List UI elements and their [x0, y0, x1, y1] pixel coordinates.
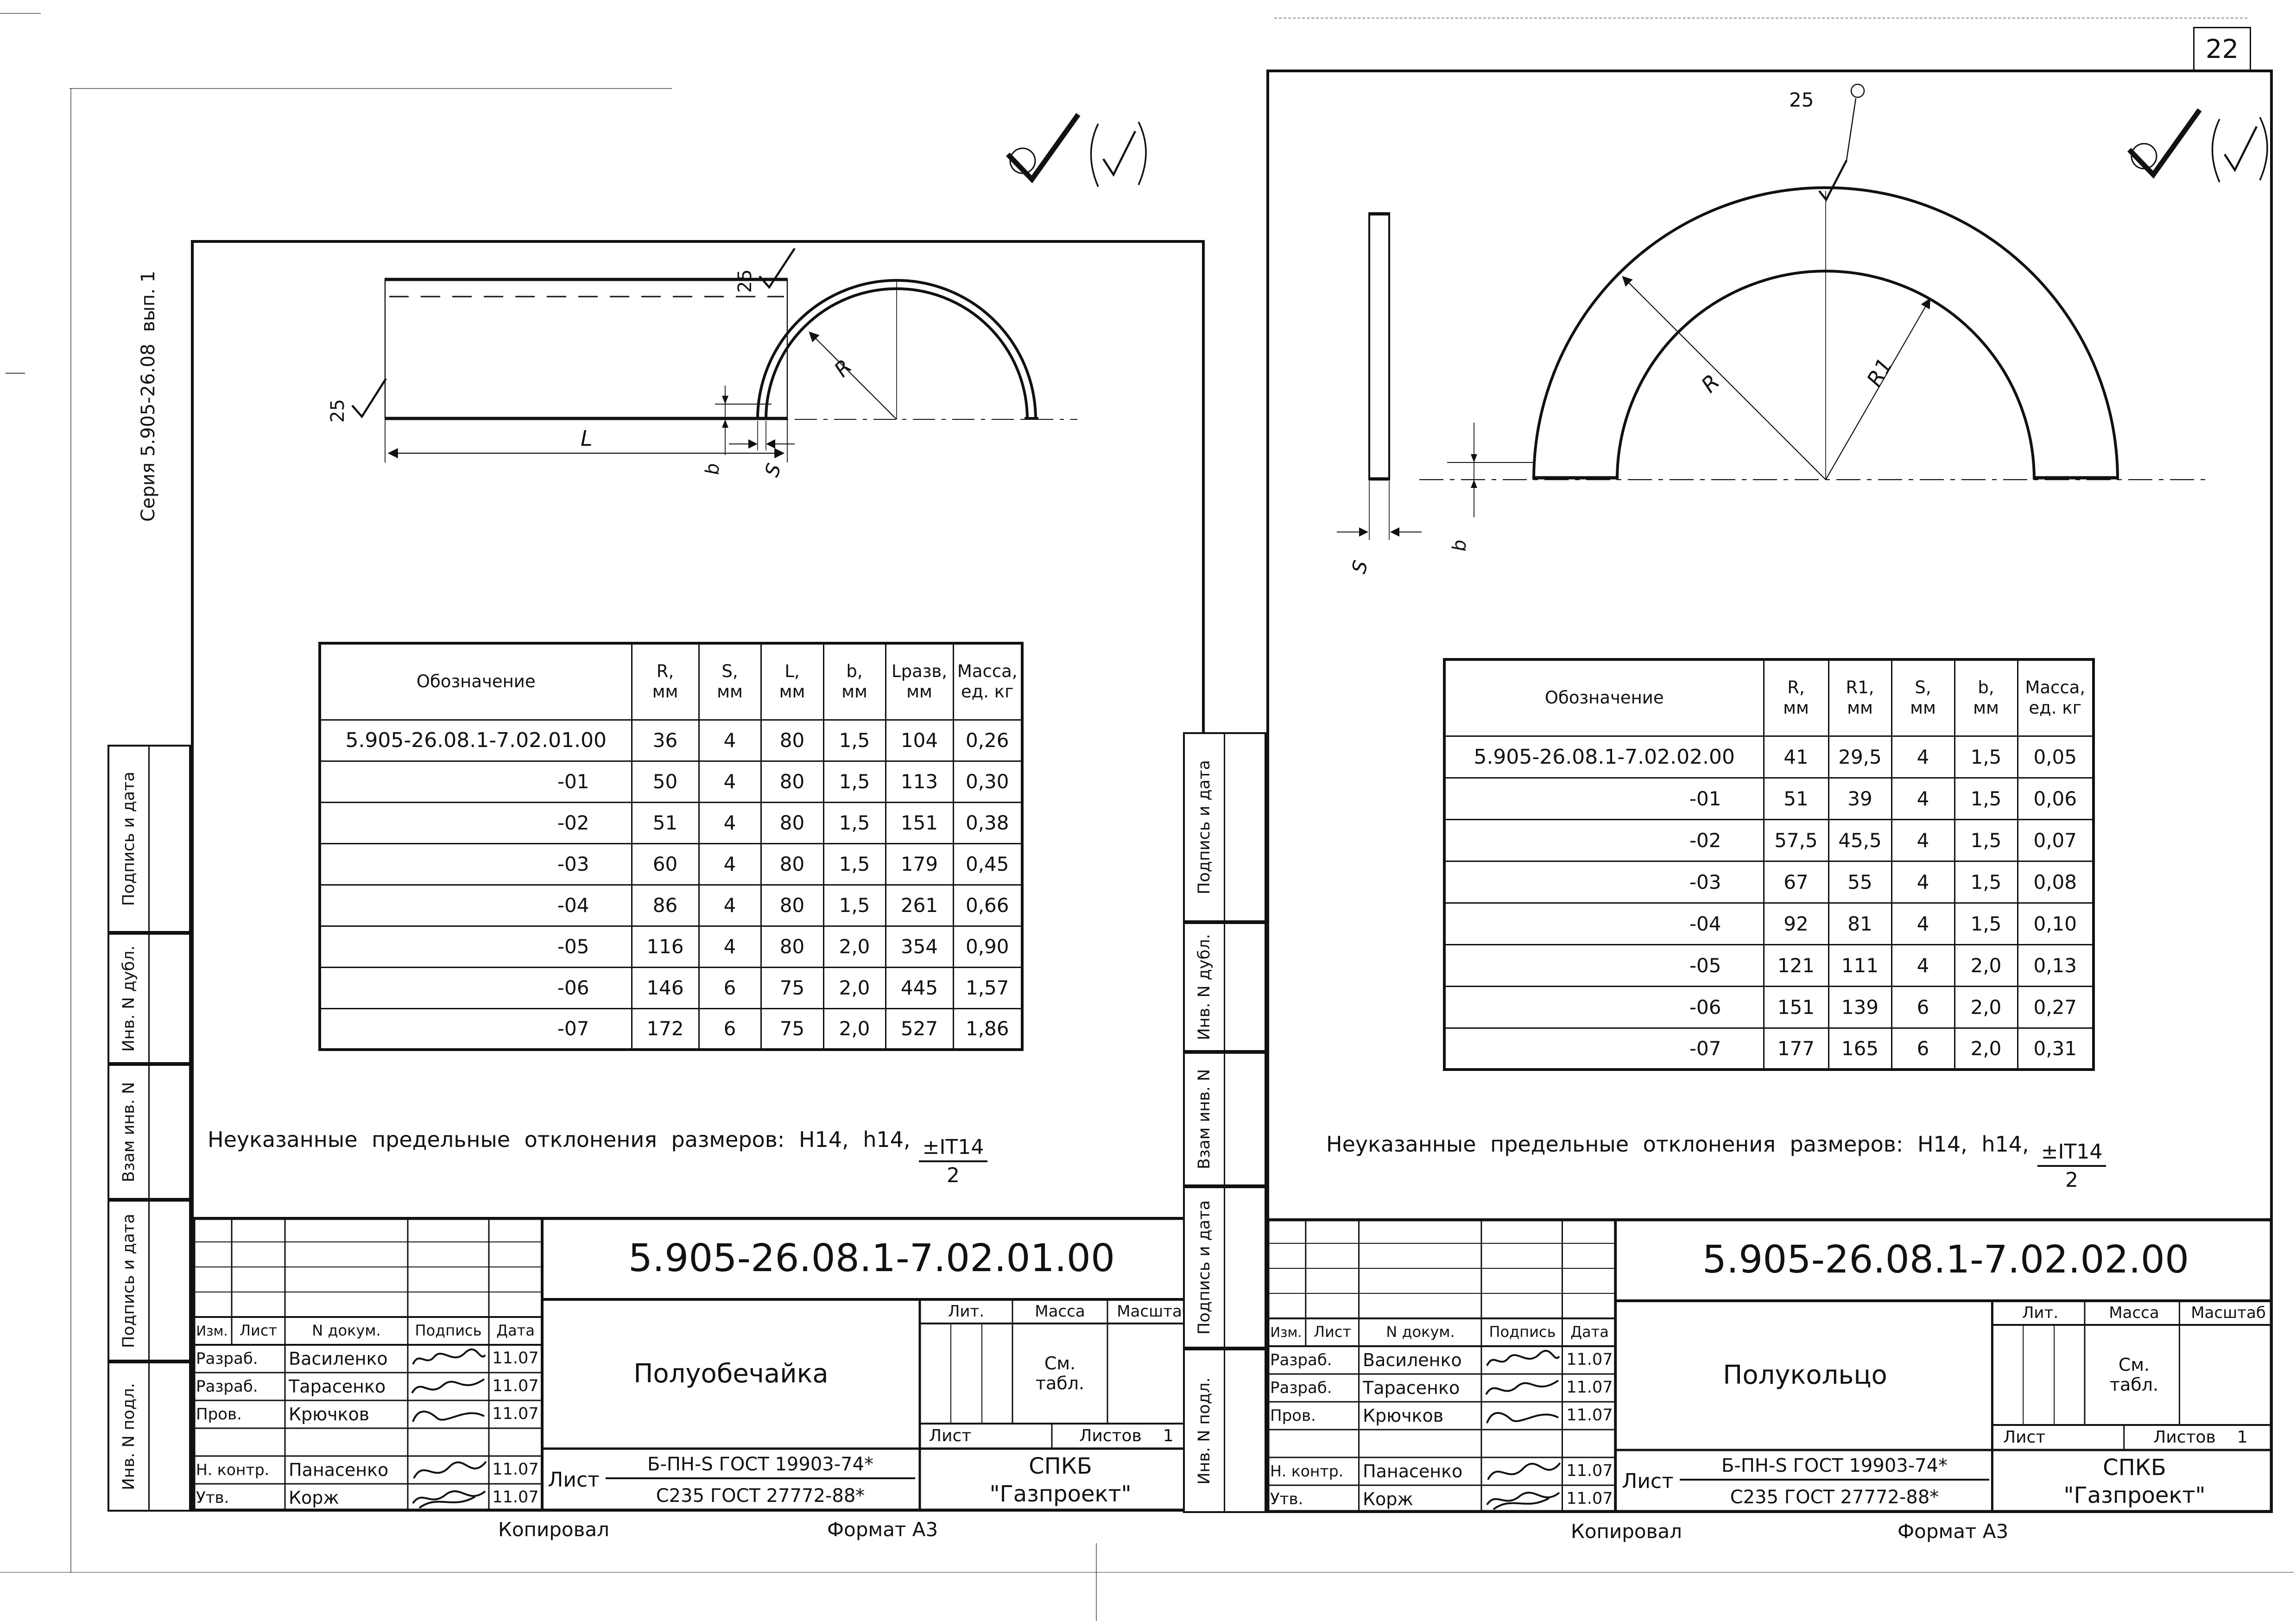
signature — [1484, 1348, 1561, 1373]
table-row: -071726752,05271,86 — [320, 1008, 1022, 1050]
table-row: -04864801,52610,66 — [320, 885, 1022, 926]
table-row: -0717716562,00,31 — [1444, 1028, 2094, 1070]
dim-S-label: S — [760, 461, 785, 480]
table-cell: 2,0 — [1954, 1028, 2018, 1070]
table-cell: 51 — [632, 802, 699, 843]
kopiroval-label: Копировал — [498, 1518, 609, 1541]
person-name: Тарасенко — [1363, 1374, 1481, 1402]
person-role: Пров. — [196, 1400, 284, 1428]
table-cell: 111 — [1828, 944, 1891, 986]
table-cell: 151 — [886, 802, 953, 843]
margin-box-inv-dubl: Инв. N дубл. — [108, 933, 191, 1064]
tolerance-note-text: Неуказанные предельные отклонения размер… — [208, 1127, 911, 1152]
margin-box-label: Подпись и дата — [120, 772, 138, 906]
column-header: Масса, ед. кг — [2018, 659, 2094, 736]
table-cell: 121 — [1764, 944, 1828, 986]
table-cell: 4 — [1891, 944, 1954, 986]
material-bottom: С235 ГОСТ 27772-88* — [606, 1482, 915, 1510]
dim-b-label: b — [702, 463, 723, 475]
table-row: 5.905-26.08.1-7.02.02.004129,541,50,05 — [1444, 736, 2094, 778]
scan-edge-dash — [6, 373, 25, 374]
table-row: -03604801,51790,45 — [320, 843, 1022, 885]
col-izm: Изм. — [192, 1317, 232, 1345]
table-cell: 177 — [1764, 1028, 1828, 1070]
table-cell: 4 — [1891, 861, 1954, 903]
listov-label: Листов — [1079, 1427, 1141, 1445]
table-row: -0257,545,541,50,07 — [1444, 819, 2094, 861]
table-cell: 29,5 — [1828, 736, 1891, 778]
person-role: Разраб. — [196, 1345, 284, 1373]
table-cell: 4 — [1891, 903, 1954, 944]
table-cell: 80 — [761, 720, 823, 761]
signature — [1484, 1459, 1561, 1484]
left-tolerance-note: Неуказанные предельные отклонения размер… — [208, 1127, 987, 1179]
margin-box-label: Инв. N подл. — [1195, 1377, 1214, 1484]
margin-box-vzam-inv: Взам инв. N — [1183, 1052, 1266, 1186]
table-row: -02514801,51510,38 — [320, 802, 1022, 843]
page-number: 22 — [2206, 34, 2239, 64]
col-izm: Изм. — [1266, 1318, 1306, 1346]
person-role: Разраб. — [196, 1373, 284, 1400]
table-cell: 2,0 — [1954, 944, 2018, 986]
person-date: 11.07 — [1563, 1346, 1616, 1374]
table-cell: 0,07 — [2018, 819, 2094, 861]
table-cell: 104 — [886, 720, 953, 761]
person-date: 11.07 — [1563, 1485, 1616, 1513]
scan-edge-line-top-corner — [0, 13, 41, 14]
table-cell: 1,5 — [823, 843, 886, 885]
col-list: Лист — [1306, 1318, 1359, 1346]
table-cell: 1,5 — [823, 885, 886, 926]
table-cell: 113 — [886, 761, 953, 802]
tolerance-note-text: Неуказанные предельные отклонения размер… — [1326, 1132, 2029, 1157]
scan-edge-line-top-right — [1274, 18, 2247, 19]
page-number-box: 22 — [2193, 27, 2251, 71]
document-number: 5.905-26.08.1-7.02.01.00 — [544, 1219, 1199, 1298]
person-role: Пров. — [1270, 1402, 1358, 1430]
table-cell: 6 — [699, 967, 761, 1008]
lit-label: Лит. — [920, 1299, 1012, 1323]
table-cell: 5.905-26.08.1-7.02.01.00 — [320, 720, 632, 761]
table-cell: 4 — [1891, 778, 1954, 819]
table-cell: -05 — [1444, 944, 1764, 986]
material-bottom: С235 ГОСТ 27772-88* — [1680, 1483, 1989, 1511]
margin-box-podpis-data-2: Подпись и дата — [1183, 1186, 1266, 1349]
person-name: Василенко — [1363, 1346, 1481, 1374]
person-role: Н. контр. — [196, 1456, 284, 1484]
table-cell: 172 — [632, 1008, 699, 1050]
column-header: S, мм — [1891, 659, 1954, 736]
table-cell: 4 — [699, 761, 761, 802]
massa-label: Масса — [1012, 1299, 1107, 1323]
person-date: 11.07 — [489, 1345, 542, 1373]
margin-box-divider — [148, 747, 150, 931]
dim-L-label: L — [581, 426, 593, 451]
table-cell: 0,10 — [2018, 903, 2094, 944]
signature — [410, 1485, 487, 1511]
person-role: Разраб. — [1270, 1374, 1358, 1402]
roughness-value-apex: 25 — [1789, 89, 1814, 111]
tolerance-fraction-numerator: ±IT14 — [919, 1135, 988, 1162]
table-cell: -05 — [320, 926, 632, 967]
dim-b-label: b — [1449, 540, 1470, 551]
table-cell: -04 — [1444, 903, 1764, 944]
column-header: R1, мм — [1828, 659, 1891, 736]
margin-box-divider — [1224, 1054, 1225, 1184]
margin-box-label: Подпись и дата — [1195, 760, 1214, 894]
scan-edge-line-bottom — [0, 1572, 2294, 1573]
col-dokum: N докум. — [1359, 1318, 1482, 1346]
table-cell: 5.905-26.08.1-7.02.02.00 — [1444, 736, 1764, 778]
margin-box-label: Взам инв. N — [1195, 1069, 1214, 1169]
table-cell: 81 — [1828, 903, 1891, 944]
table-cell: 445 — [886, 967, 953, 1008]
table-cell: 36 — [632, 720, 699, 761]
table-cell: 57,5 — [1764, 819, 1828, 861]
table-cell: 139 — [1828, 986, 1891, 1028]
table-cell: -06 — [320, 967, 632, 1008]
table-cell: 80 — [761, 843, 823, 885]
margin-box-podpis-data-1: Подпись и дата — [1183, 732, 1266, 922]
dim-R1-label: R1 — [1862, 354, 1898, 391]
material-top: Б-ПН-S ГОСТ 19903-74* — [1680, 1453, 1989, 1481]
table-cell: -06 — [1444, 986, 1764, 1028]
column-header: R, мм — [632, 643, 699, 720]
table-cell: 1,5 — [1954, 819, 2018, 861]
listov-group: Листов 1 — [2126, 1425, 2275, 1450]
person-name: Панасенко — [289, 1456, 407, 1484]
table-cell: 146 — [632, 967, 699, 1008]
table-cell: 80 — [761, 926, 823, 967]
table-cell: 151 — [1764, 986, 1828, 1028]
listov-value: 1 — [1163, 1427, 1174, 1445]
margin-box-divider — [148, 1066, 150, 1198]
person-date: 11.07 — [1563, 1402, 1616, 1430]
table-cell: 116 — [632, 926, 699, 967]
table-cell: 41 — [1764, 736, 1828, 778]
massa-value: См. табл. — [1012, 1323, 1107, 1424]
massa-value: См. табл. — [2087, 1325, 2182, 1425]
margin-box-inv-dubl: Инв. N дубл. — [1183, 922, 1266, 1052]
tolerance-fraction-denominator: 2 — [2065, 1167, 2078, 1192]
table-cell: 6 — [699, 1008, 761, 1050]
right-title-block: Изм. Лист N докум. Подпись Дата Разраб. … — [1266, 1218, 2275, 1513]
table-cell: 1,5 — [823, 720, 886, 761]
dim-S-label: S — [1347, 558, 1372, 576]
signature — [410, 1458, 487, 1483]
table-cell: -07 — [1444, 1028, 1764, 1070]
table-cell: -01 — [1444, 778, 1764, 819]
table-cell: 2,0 — [823, 1008, 886, 1050]
margin-box-vzam-inv: Взам инв. N — [108, 1064, 191, 1200]
margin-box-divider — [1224, 1188, 1225, 1347]
list-label: Лист — [1998, 1425, 2090, 1450]
margin-box-inv-podl: Инв. N подл. — [108, 1361, 191, 1512]
table-row: 5.905-26.08.1-7.02.01.00364801,51040,26 — [320, 720, 1022, 761]
margin-box-podpis-data-2: Подпись и дата — [108, 1200, 191, 1361]
margin-box-label: Взам инв. N — [120, 1082, 138, 1182]
table-cell: -02 — [1444, 819, 1764, 861]
col-dokum: N докум. — [285, 1317, 408, 1345]
table-cell: 0,30 — [953, 761, 1022, 802]
table-row: -01504801,51130,30 — [320, 761, 1022, 802]
roughness-value-top: 25 — [734, 269, 756, 293]
margin-box-divider — [148, 1363, 150, 1510]
tolerance-fraction: ±IT14 2 — [919, 1135, 988, 1187]
tolerance-fraction: ±IT14 2 — [2037, 1140, 2106, 1192]
table-cell: 80 — [761, 802, 823, 843]
table-cell: 0,26 — [953, 720, 1022, 761]
table-row: -03675541,50,08 — [1444, 861, 2094, 903]
right-technical-drawing: S b R R1 25 — [1266, 70, 2273, 607]
part-name: Полуобечайка — [542, 1299, 920, 1449]
person-name: Корж — [289, 1484, 407, 1512]
column-header: R, мм — [1764, 659, 1828, 736]
table-cell: 261 — [886, 885, 953, 926]
margin-box-label: Подпись и дата — [1195, 1200, 1214, 1335]
organization: СПКБ "Газпроект" — [920, 1449, 1201, 1512]
col-data: Дата — [489, 1317, 542, 1345]
tolerance-fraction-denominator: 2 — [947, 1162, 960, 1187]
table-row: -01513941,50,06 — [1444, 778, 2094, 819]
table-cell: 527 — [886, 1008, 953, 1050]
table-cell: 4 — [699, 802, 761, 843]
table-cell: 4 — [1891, 736, 1954, 778]
table-cell: 4 — [699, 926, 761, 967]
table-header-row: ОбозначениеR, ммS, ммL, ммb, ммLразв, мм… — [320, 643, 1022, 720]
table-cell: 51 — [1764, 778, 1828, 819]
person-date: 11.07 — [489, 1373, 542, 1400]
roughness-value-left: 25 — [327, 399, 348, 423]
table-cell: 165 — [1828, 1028, 1891, 1070]
left-technical-drawing: L 25 25 R b S — [192, 241, 1205, 607]
table-cell: 1,57 — [953, 967, 1022, 1008]
person-name: Крючков — [1363, 1402, 1481, 1430]
document-number: 5.905-26.08.1-7.02.02.00 — [1619, 1220, 2273, 1300]
person-name: Василенко — [289, 1345, 407, 1373]
table-cell: 1,5 — [1954, 861, 2018, 903]
material-top: Б-ПН-S ГОСТ 19903-74* — [606, 1451, 915, 1479]
table-row: -0615113962,00,27 — [1444, 986, 2094, 1028]
table-cell: 2,0 — [823, 967, 886, 1008]
margin-box-label: Инв. N дубл. — [120, 945, 138, 1051]
col-podpis: Подпись — [408, 1317, 489, 1345]
table-cell: 0,38 — [953, 802, 1022, 843]
person-name: Корж — [1363, 1485, 1481, 1513]
column-header: Lразв, мм — [886, 643, 953, 720]
person-name: Крючков — [289, 1400, 407, 1428]
column-header: Обозначение — [1444, 659, 1764, 736]
table-cell: 6 — [1891, 986, 1954, 1028]
person-role: Разраб. — [1270, 1346, 1358, 1374]
table-cell: -07 — [320, 1008, 632, 1050]
table-cell: 80 — [761, 885, 823, 926]
table-cell: 80 — [761, 761, 823, 802]
column-header: Масса, ед. кг — [953, 643, 1022, 720]
table-cell: 1,5 — [823, 761, 886, 802]
table-cell: 55 — [1828, 861, 1891, 903]
table-cell: -04 — [320, 885, 632, 926]
format-label: Формат А3 — [1898, 1520, 2008, 1543]
lit-label: Лит. — [1994, 1301, 2087, 1325]
table-cell: 0,27 — [2018, 986, 2094, 1028]
listov-label: Листов — [2153, 1428, 2215, 1447]
list-label: Лист — [923, 1424, 1016, 1449]
table-cell: 0,05 — [2018, 736, 2094, 778]
margin-box-divider — [1224, 1350, 1225, 1511]
listov-group: Листов 1 — [1052, 1424, 1201, 1449]
table-cell: 67 — [1764, 861, 1828, 903]
table-header-row: ОбозначениеR, ммR1, ммS, ммb, ммМасса, е… — [1444, 659, 2094, 736]
table-cell: 1,86 — [953, 1008, 1022, 1050]
format-label: Формат А3 — [827, 1518, 938, 1541]
signature — [410, 1374, 487, 1399]
signature — [410, 1347, 487, 1372]
table-cell: 1,5 — [1954, 778, 2018, 819]
margin-box-divider — [1224, 734, 1225, 920]
approval-check-icon — [994, 109, 1161, 199]
margin-box-divider — [1224, 924, 1225, 1050]
table-cell: -01 — [320, 761, 632, 802]
table-cell: 4 — [1891, 819, 1954, 861]
massa-label: Масса — [2087, 1301, 2182, 1325]
scanned-drawing-page: { "page": { "sheet_number": "22", "foote… — [0, 0, 2296, 1621]
signature — [410, 1402, 487, 1427]
table-cell: 1,5 — [1954, 736, 2018, 778]
table-cell: 60 — [632, 843, 699, 885]
table-cell: 0,13 — [2018, 944, 2094, 986]
material-prefix: Лист — [544, 1449, 604, 1512]
person-name: Тарасенко — [289, 1373, 407, 1400]
table-cell: 179 — [886, 843, 953, 885]
material-prefix: Лист — [1618, 1450, 1678, 1513]
dim-R-label: R — [830, 355, 857, 382]
table-cell: 2,0 — [1954, 986, 2018, 1028]
table-row: -061466752,04451,57 — [320, 967, 1022, 1008]
table-cell: 50 — [632, 761, 699, 802]
margin-box-divider — [148, 935, 150, 1062]
table-cell: 1,5 — [823, 802, 886, 843]
table-row: -0512111142,00,13 — [1444, 944, 2094, 986]
margin-box-podpis-data-1: Подпись и дата — [108, 745, 191, 933]
person-date: 11.07 — [1563, 1374, 1616, 1402]
person-date: 11.07 — [1563, 1457, 1616, 1485]
table-cell: 39 — [1828, 778, 1891, 819]
margin-box-label: Инв. N дубл. — [1195, 934, 1214, 1040]
left-title-block: Изм. Лист N докум. Подпись Дата Разраб. … — [192, 1217, 1201, 1512]
series-label: Серия 5.905-26.08 вып. 1 — [138, 271, 159, 522]
tolerance-fraction-numerator: ±IT14 — [2037, 1140, 2106, 1167]
listov-value: 1 — [2237, 1428, 2248, 1447]
table-cell: 354 — [886, 926, 953, 967]
col-data: Дата — [1563, 1318, 1616, 1346]
table-cell: 0,45 — [953, 843, 1022, 885]
column-header: L, мм — [761, 643, 823, 720]
scan-edge-line-top — [70, 88, 672, 89]
table-cell: 0,08 — [2018, 861, 2094, 903]
col-podpis: Подпись — [1482, 1318, 1563, 1346]
table-cell: 4 — [699, 885, 761, 926]
right-tolerance-note: Неуказанные предельные отклонения размер… — [1326, 1132, 2106, 1184]
person-role: Утв. — [1270, 1485, 1358, 1513]
col-list: Лист — [232, 1317, 285, 1345]
table-row: -04928141,50,10 — [1444, 903, 2094, 944]
margin-box-divider — [148, 1202, 150, 1360]
table-cell: -03 — [1444, 861, 1764, 903]
column-header: b, мм — [1954, 659, 2018, 736]
person-role: Утв. — [196, 1484, 284, 1512]
table-cell: 75 — [761, 1008, 823, 1050]
table-cell: 0,66 — [953, 885, 1022, 926]
margin-box-label: Инв. N подл. — [120, 1383, 138, 1490]
part-name: Полукольцо — [1616, 1301, 1994, 1450]
table-cell: 6 — [1891, 1028, 1954, 1070]
margin-box-inv-podl: Инв. N подл. — [1183, 1349, 1266, 1513]
table-row: -051164802,03540,90 — [320, 926, 1022, 967]
organization: СПКБ "Газпроект" — [1994, 1450, 2275, 1513]
table-cell: 75 — [761, 967, 823, 1008]
table-cell: 2,0 — [823, 926, 886, 967]
person-date: 11.07 — [489, 1400, 542, 1428]
signature — [1484, 1376, 1561, 1401]
table-cell: 0,06 — [2018, 778, 2094, 819]
table-cell: 4 — [699, 843, 761, 885]
table-cell: 0,31 — [2018, 1028, 2094, 1070]
person-name: Панасенко — [1363, 1457, 1481, 1485]
column-header: Обозначение — [320, 643, 632, 720]
column-header: b, мм — [823, 643, 886, 720]
table-cell: 4 — [699, 720, 761, 761]
margin-box-label: Подпись и дата — [120, 1214, 138, 1348]
table-cell: 1,5 — [1954, 903, 2018, 944]
person-date: 11.07 — [489, 1484, 542, 1512]
left-spec-table: ОбозначениеR, ммS, ммL, ммb, ммLразв, мм… — [318, 642, 1024, 1051]
table-cell: 92 — [1764, 903, 1828, 944]
person-role: Н. контр. — [1270, 1457, 1358, 1485]
table-cell: -03 — [320, 843, 632, 885]
right-spec-table: ОбозначениеR, ммR1, ммS, ммb, ммМасса, е… — [1443, 658, 2095, 1071]
table-cell: -02 — [320, 802, 632, 843]
signature — [1484, 1486, 1561, 1512]
person-date: 11.07 — [489, 1456, 542, 1484]
table-cell: 86 — [632, 885, 699, 926]
kopiroval-label: Копировал — [1571, 1520, 1682, 1543]
table-cell: 0,90 — [953, 926, 1022, 967]
masshtab-label: Масштаб — [2182, 1301, 2275, 1325]
signature — [1484, 1404, 1561, 1429]
table-cell: 45,5 — [1828, 819, 1891, 861]
scan-fold-mark — [1096, 1543, 1097, 1621]
column-header: S, мм — [699, 643, 761, 720]
